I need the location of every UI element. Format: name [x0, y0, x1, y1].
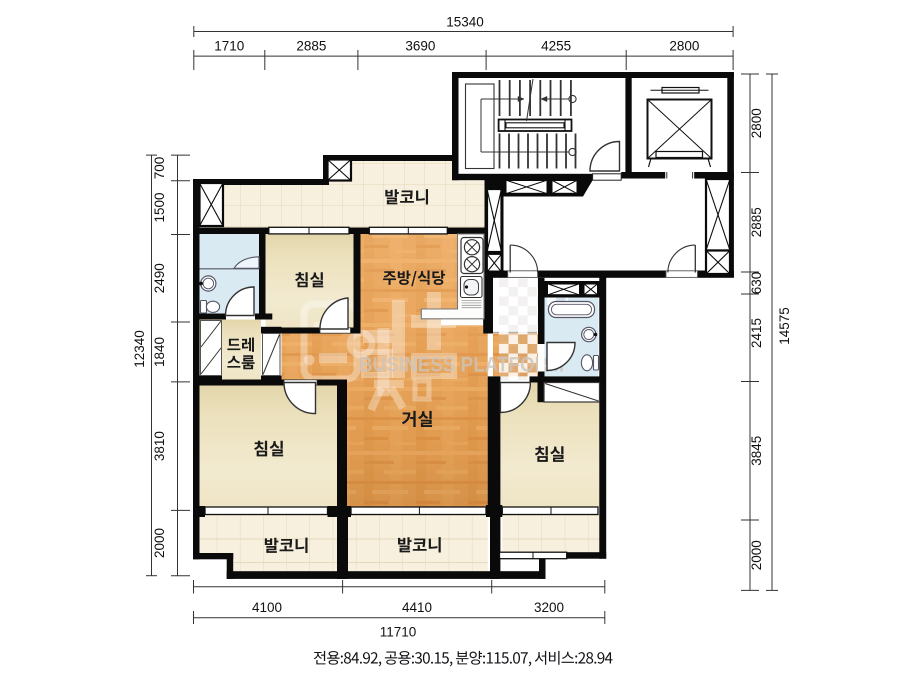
svg-text:2800: 2800 — [749, 108, 764, 138]
svg-text:4255: 4255 — [541, 39, 571, 54]
svg-text:11710: 11710 — [380, 625, 417, 640]
svg-text:1840: 1840 — [152, 337, 167, 367]
svg-text:15340: 15340 — [446, 15, 484, 30]
svg-text:2490: 2490 — [152, 263, 167, 293]
svg-text:700: 700 — [152, 157, 167, 180]
svg-text:1500: 1500 — [152, 192, 167, 222]
svg-text:2415: 2415 — [749, 318, 764, 348]
svg-text:3845: 3845 — [749, 436, 764, 466]
svg-text:4100: 4100 — [252, 600, 282, 615]
svg-text:2000: 2000 — [152, 528, 167, 558]
svg-text:12340: 12340 — [132, 330, 147, 368]
svg-text:3810: 3810 — [152, 431, 167, 461]
svg-text:14575: 14575 — [777, 307, 792, 345]
svg-text:BUSINESS PLATFORM: BUSINESS PLATFORM — [359, 353, 564, 377]
svg-text:2000: 2000 — [749, 540, 764, 570]
svg-text:2885: 2885 — [749, 207, 764, 237]
svg-text:4410: 4410 — [402, 600, 432, 615]
svg-text:630: 630 — [749, 272, 764, 295]
svg-text:3200: 3200 — [534, 600, 564, 615]
svg-text:3690: 3690 — [405, 39, 435, 54]
svg-text:2885: 2885 — [296, 39, 326, 54]
svg-text:1710: 1710 — [214, 39, 244, 54]
svg-text:2800: 2800 — [669, 39, 699, 54]
